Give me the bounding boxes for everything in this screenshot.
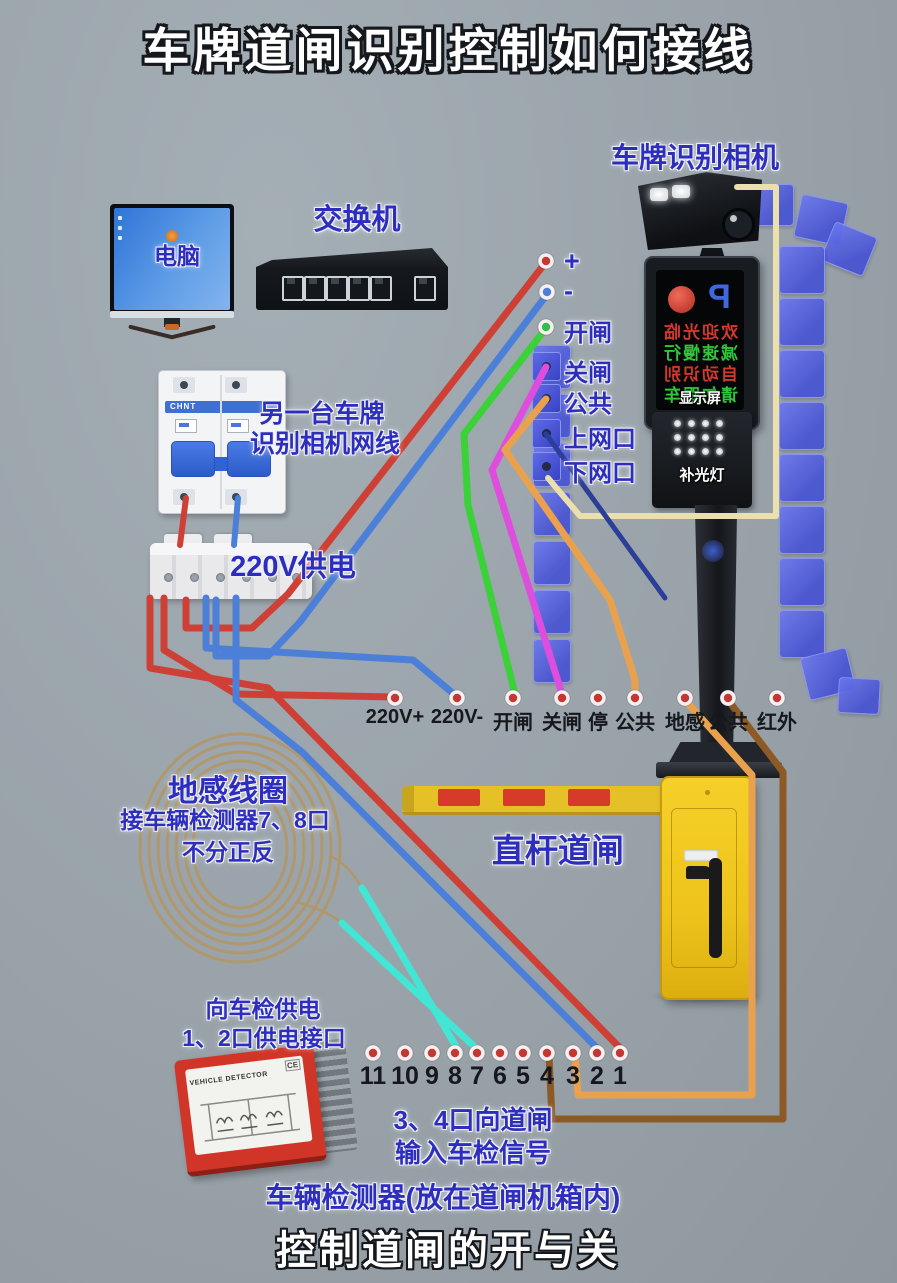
signal-note-line1: 3、4口向道闸	[394, 1100, 553, 1137]
blue-panel	[779, 350, 825, 398]
ethernet-port	[326, 276, 348, 301]
camera-head	[638, 172, 762, 250]
ce-mark: CE	[284, 1059, 300, 1072]
terminal-block-common	[532, 384, 561, 413]
terminal-block-close-gate	[532, 352, 561, 381]
led-dot	[716, 448, 723, 455]
led-dot	[702, 434, 709, 441]
led-dot	[688, 434, 695, 441]
wiring-diagram: CHNT	[0, 0, 897, 1283]
breaker-window	[175, 419, 197, 433]
cabinet-panel-outline	[671, 808, 737, 968]
breaker-note-line2: 识别相机网线	[250, 424, 400, 460]
detector-terminal-5: 5	[516, 1062, 530, 1091]
footer-caption: 控制道闸的开与关	[276, 1218, 620, 1276]
breaker-toggle	[171, 441, 215, 477]
barrier-arm-stripe	[503, 789, 545, 806]
desktop-icon	[118, 226, 122, 230]
desktop-icon	[118, 216, 122, 220]
blue-panel	[533, 492, 571, 536]
coil-label-line2: 接车辆检测器7、8口	[120, 801, 330, 835]
terminal-screw	[216, 573, 225, 582]
camera-terminal-net-up: 上网口	[564, 419, 636, 454]
terminal-block-net-down	[532, 452, 561, 481]
camera-terminal-dots	[538, 253, 555, 335]
camera-flash-light	[672, 185, 690, 198]
fill-light-panel: 补光灯	[652, 412, 752, 508]
blue-panel	[779, 298, 825, 346]
detector-terminal-10: 10	[391, 1062, 419, 1091]
detector-terminal-4: 4	[540, 1062, 554, 1091]
detector-terminal-11: 11	[360, 1062, 386, 1091]
computer-label: 电脑	[154, 237, 200, 271]
ethernet-port	[282, 276, 304, 301]
detector-terminal-dots	[365, 1045, 628, 1061]
monitor-bottom-strip	[110, 311, 234, 318]
gate-terminal-common1: 公共	[615, 706, 655, 735]
detector-caption: 车辆检测器(放在道闸机箱内)	[266, 1176, 621, 1216]
detector-terminal-3: 3	[566, 1062, 580, 1091]
blue-panel	[779, 402, 825, 450]
signal-note-line2: 输入车检信号	[395, 1133, 551, 1170]
camera-terminal-close: 关闸	[564, 353, 612, 388]
pole-glow	[702, 540, 724, 562]
pole-base	[668, 742, 772, 764]
terminal-screw	[164, 573, 173, 582]
blue-panel	[779, 454, 825, 502]
network-switch	[256, 240, 448, 310]
breaker-window	[227, 419, 249, 433]
screen-line: 欢迎光临	[658, 322, 742, 343]
blue-panel	[837, 677, 881, 715]
monitor-stand-knob	[165, 324, 179, 330]
gate-terminal-infrared: 红外	[757, 706, 797, 735]
led-dot	[674, 420, 681, 427]
blue-panel	[533, 541, 571, 585]
detector-note-line2: 1、2口供电接口	[182, 1019, 346, 1053]
camera-flash-light	[650, 188, 668, 201]
computer-monitor	[110, 204, 234, 344]
wire-cyan-coil-8	[362, 888, 457, 1048]
screen-red-light	[668, 286, 695, 313]
gate-terminal-common2: 公共	[708, 706, 748, 735]
ethernet-port	[370, 276, 392, 301]
gate-terminal-220v-minus: 220V-	[431, 706, 483, 729]
barrier-label: 直杆道闸	[492, 824, 624, 872]
led-dot	[674, 448, 681, 455]
breaker-bottom-screw	[173, 489, 195, 505]
gate-terminal-220v-plus: 220V+	[366, 706, 424, 729]
camera-label: 车牌识别相机	[611, 136, 779, 176]
led-dot	[688, 448, 695, 455]
wire-cyan-coil-7	[342, 923, 478, 1050]
led-dot	[674, 434, 681, 441]
vehicle-detector: VEHICLE DETECTOR CE	[173, 1034, 363, 1179]
led-dot	[716, 420, 723, 427]
display-label: 显示屏	[656, 388, 744, 408]
detector-terminal-8: 8	[448, 1062, 462, 1091]
detector-circuit-drawing	[191, 1077, 310, 1152]
breaker-top-screw	[173, 377, 195, 393]
camera-terminal-common: 公共	[564, 384, 612, 419]
barrier-arm-stripe	[568, 789, 610, 806]
fill-light-label: 补光灯	[652, 464, 752, 485]
detector-terminal-6: 6	[493, 1062, 507, 1091]
led-dot	[688, 420, 695, 427]
breaker-pole-divider	[220, 375, 222, 509]
gate-terminal-ground: 地感	[665, 706, 705, 735]
wire-red-220v-plus	[164, 598, 395, 697]
camera-terminal-minus: -	[564, 276, 573, 307]
gate-terminal-close: 关闸	[542, 706, 582, 735]
ethernet-port	[304, 276, 326, 301]
ethernet-port	[348, 276, 370, 301]
led-dot	[702, 420, 709, 427]
detector-label: VEHICLE DETECTOR CE	[185, 1055, 313, 1155]
coil-lead	[330, 856, 362, 888]
camera-terminal-plus: +	[564, 246, 580, 277]
detector-terminal-9: 9	[425, 1062, 439, 1091]
blue-panel	[779, 246, 825, 294]
cabinet-car-icon	[686, 866, 711, 879]
detector-terminal-2: 2	[590, 1062, 604, 1091]
screen-line: 减速慢行	[658, 343, 742, 364]
detector-body: VEHICLE DETECTOR CE	[174, 1044, 327, 1177]
blue-panel	[533, 639, 571, 683]
camera-lens	[722, 208, 755, 241]
detector-terminal-7: 7	[470, 1062, 484, 1091]
blue-panel	[779, 506, 825, 554]
blue-panel	[533, 590, 571, 634]
blue-panel	[779, 558, 825, 606]
led-display: P 欢迎光临 减速慢行 自动识别 请勿跟车 显示屏	[644, 256, 760, 430]
coil-lead	[296, 902, 342, 923]
desktop-icon	[118, 236, 122, 240]
terminal-screw	[190, 573, 199, 582]
breaker-bottom-screw	[225, 489, 247, 505]
ethernet-port	[414, 276, 436, 301]
gate-terminal-open: 开闸	[493, 706, 533, 735]
cabinet-brand-stripe	[709, 858, 722, 958]
blue-panel	[779, 610, 825, 658]
barrier-arm-cap	[402, 786, 414, 812]
power-label: 220V供电	[230, 543, 356, 585]
led-dot	[702, 448, 709, 455]
screen-line: 自动识别	[658, 364, 742, 385]
terminal-block-net-up	[532, 419, 561, 448]
wire-blue-220v-minus	[206, 598, 455, 695]
led-dot	[716, 434, 723, 441]
cabinet-rivet	[705, 790, 710, 795]
barrier-cabinet	[660, 776, 754, 1000]
led-screen: P 欢迎光临 减速慢行 自动识别 请勿跟车 显示屏	[656, 270, 744, 410]
switch-label: 交换机	[313, 196, 400, 238]
page-title: 车牌道闸识别控制如何接线	[0, 12, 897, 81]
coil-label-line3: 不分正反	[182, 833, 274, 867]
breaker-top-screw	[225, 377, 247, 393]
detector-terminal-1: 1	[613, 1062, 627, 1091]
gate-terminal-stop: 停	[588, 706, 608, 735]
camera-terminal-open: 开闸	[564, 313, 612, 348]
camera-terminal-net-down: 下网口	[564, 453, 636, 488]
screen-p-mark: P	[708, 278, 731, 317]
barrier-arm-stripe	[438, 789, 480, 806]
